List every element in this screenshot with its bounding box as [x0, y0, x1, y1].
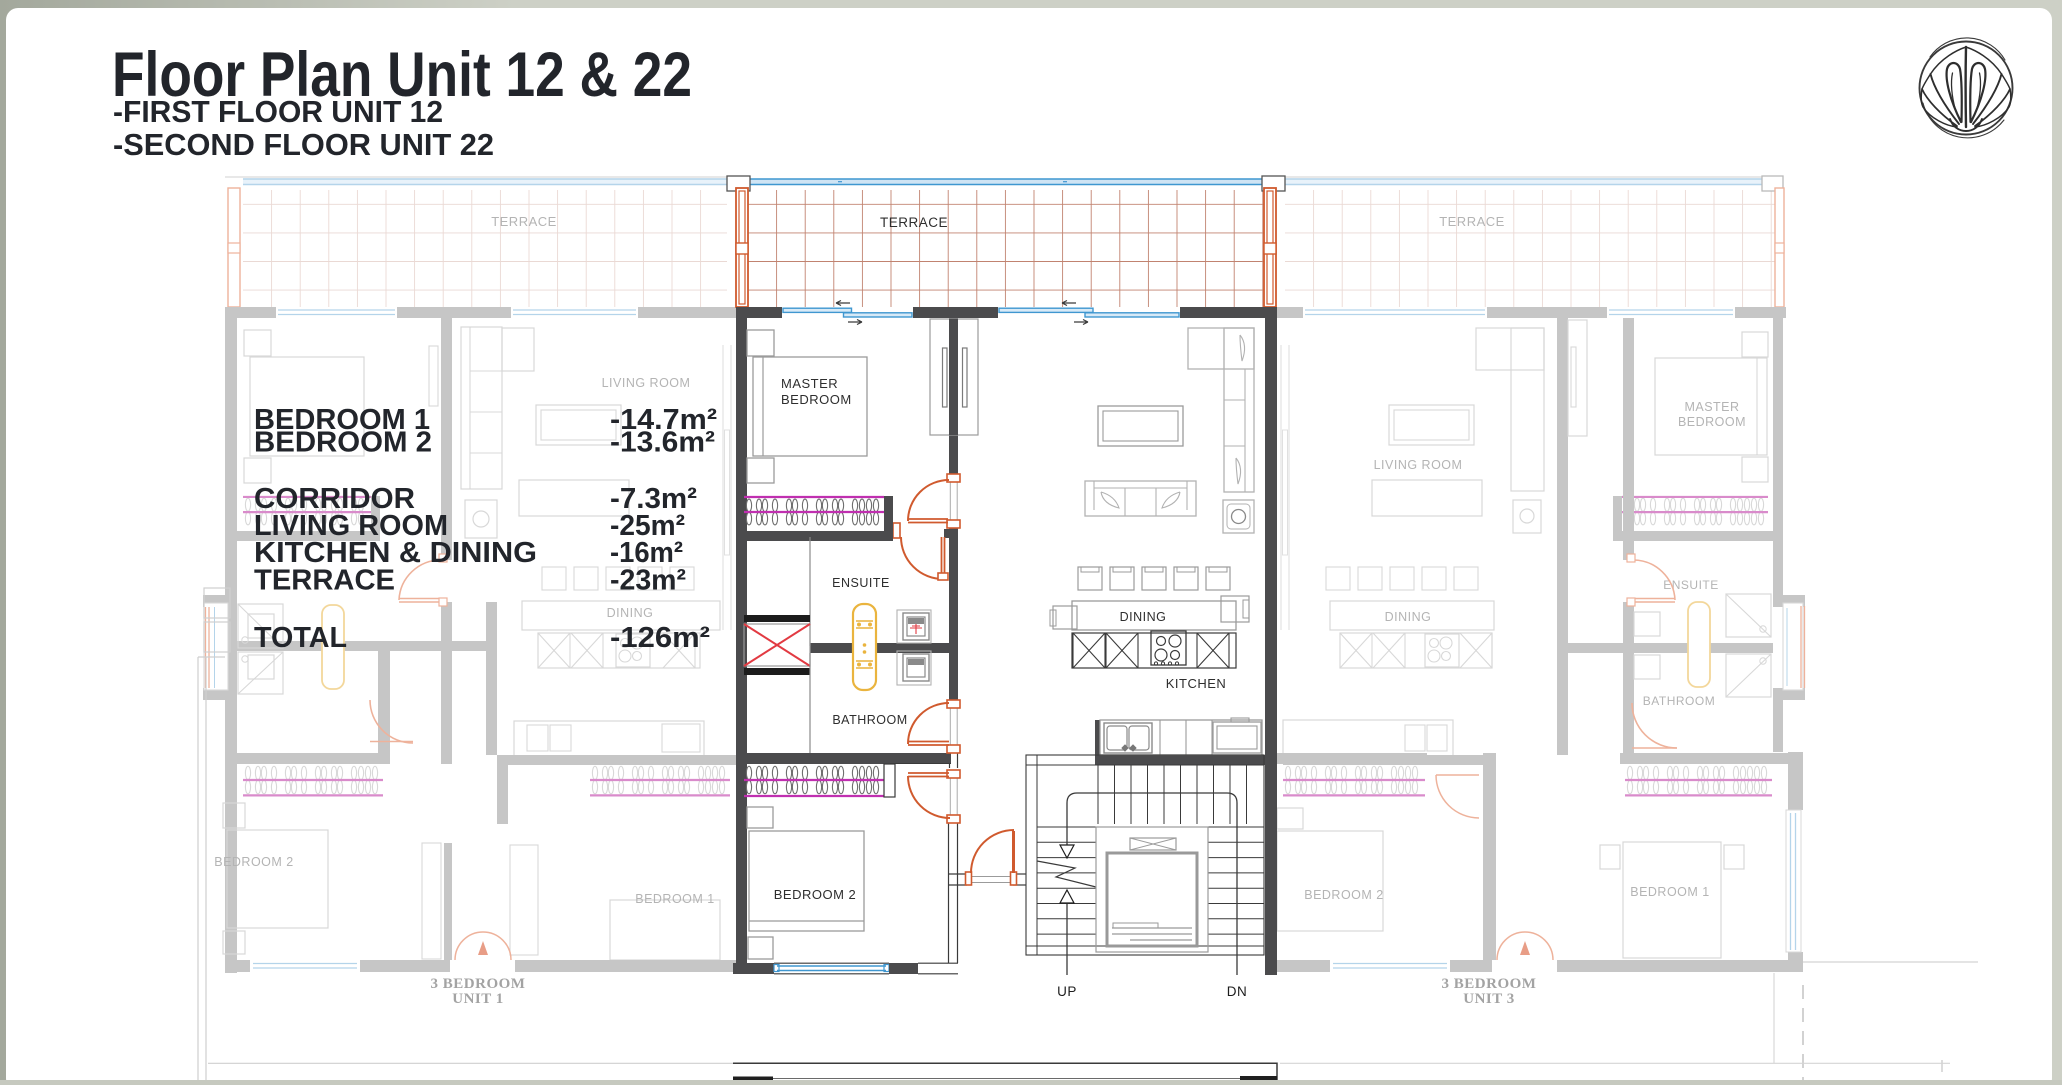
- svg-text:TERRACE: TERRACE: [880, 215, 948, 230]
- svg-text:-126m²: -126m²: [610, 622, 710, 654]
- svg-text:UNIT 3: UNIT 3: [1463, 991, 1515, 1007]
- svg-text:BEDROOM 2: BEDROOM 2: [254, 427, 432, 459]
- svg-text:BEDROOM 2: BEDROOM 2: [774, 887, 857, 902]
- svg-text:LIVING ROOM: LIVING ROOM: [1374, 458, 1463, 472]
- svg-text:LIVING ROOM: LIVING ROOM: [602, 376, 691, 390]
- svg-text:-23m²: -23m²: [610, 565, 686, 597]
- svg-text:-FIRST FLOOR UNIT 12: -FIRST FLOOR UNIT 12: [113, 94, 443, 129]
- svg-text:BEDROOM 2: BEDROOM 2: [214, 855, 294, 869]
- svg-text:DN: DN: [1227, 984, 1248, 999]
- svg-text:TERRACE: TERRACE: [254, 565, 395, 597]
- svg-text:BEDROOM 1: BEDROOM 1: [635, 892, 715, 906]
- svg-text:UP: UP: [1057, 984, 1077, 999]
- svg-text:MASTER: MASTER: [1684, 400, 1739, 414]
- svg-text:ENSUITE: ENSUITE: [832, 576, 890, 590]
- svg-text:MASTER: MASTER: [781, 376, 838, 391]
- svg-text:BEDROOM: BEDROOM: [781, 392, 852, 407]
- svg-text:BATHROOM: BATHROOM: [1643, 694, 1715, 708]
- svg-text:-13.6m²: -13.6m²: [610, 427, 715, 459]
- svg-text:TERRACE: TERRACE: [491, 214, 557, 229]
- svg-text:KITCHEN: KITCHEN: [1166, 676, 1227, 691]
- svg-text:TERRACE: TERRACE: [1439, 214, 1505, 229]
- svg-text:BATHROOM: BATHROOM: [832, 713, 907, 727]
- svg-text:DINING: DINING: [607, 606, 654, 620]
- svg-text:DINING: DINING: [1385, 610, 1432, 624]
- svg-text:TOTAL: TOTAL: [254, 622, 347, 654]
- svg-text:BEDROOM 2: BEDROOM 2: [1304, 888, 1384, 902]
- svg-text:UNIT 1: UNIT 1: [452, 991, 504, 1007]
- svg-text:3 BEDROOM: 3 BEDROOM: [1442, 976, 1537, 992]
- svg-text:BEDROOM: BEDROOM: [1678, 415, 1746, 429]
- svg-text:3 BEDROOM: 3 BEDROOM: [431, 976, 526, 992]
- svg-text:BEDROOM 1: BEDROOM 1: [1630, 885, 1710, 899]
- svg-text:-SECOND FLOOR UNIT 22: -SECOND FLOOR UNIT 22: [113, 127, 494, 162]
- svg-text:DINING: DINING: [1120, 610, 1167, 624]
